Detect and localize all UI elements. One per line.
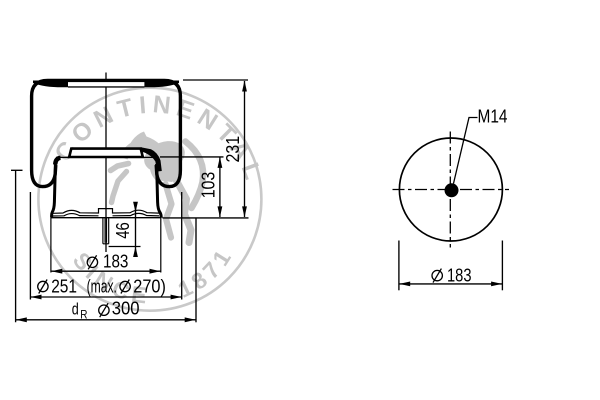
svg-text:(max.: (max.: [87, 276, 117, 296]
svg-text:183: 183: [447, 265, 472, 285]
svg-text:R: R: [80, 307, 87, 321]
svg-text:231: 231: [223, 136, 243, 163]
svg-text:M14: M14: [478, 106, 508, 126]
svg-text:251: 251: [51, 276, 77, 296]
svg-text:183: 183: [103, 252, 128, 272]
svg-text:46: 46: [113, 222, 133, 239]
svg-text:103: 103: [199, 172, 219, 199]
svg-text:270): 270): [133, 276, 166, 296]
svg-text:300: 300: [112, 299, 140, 319]
svg-text:d: d: [72, 300, 79, 319]
